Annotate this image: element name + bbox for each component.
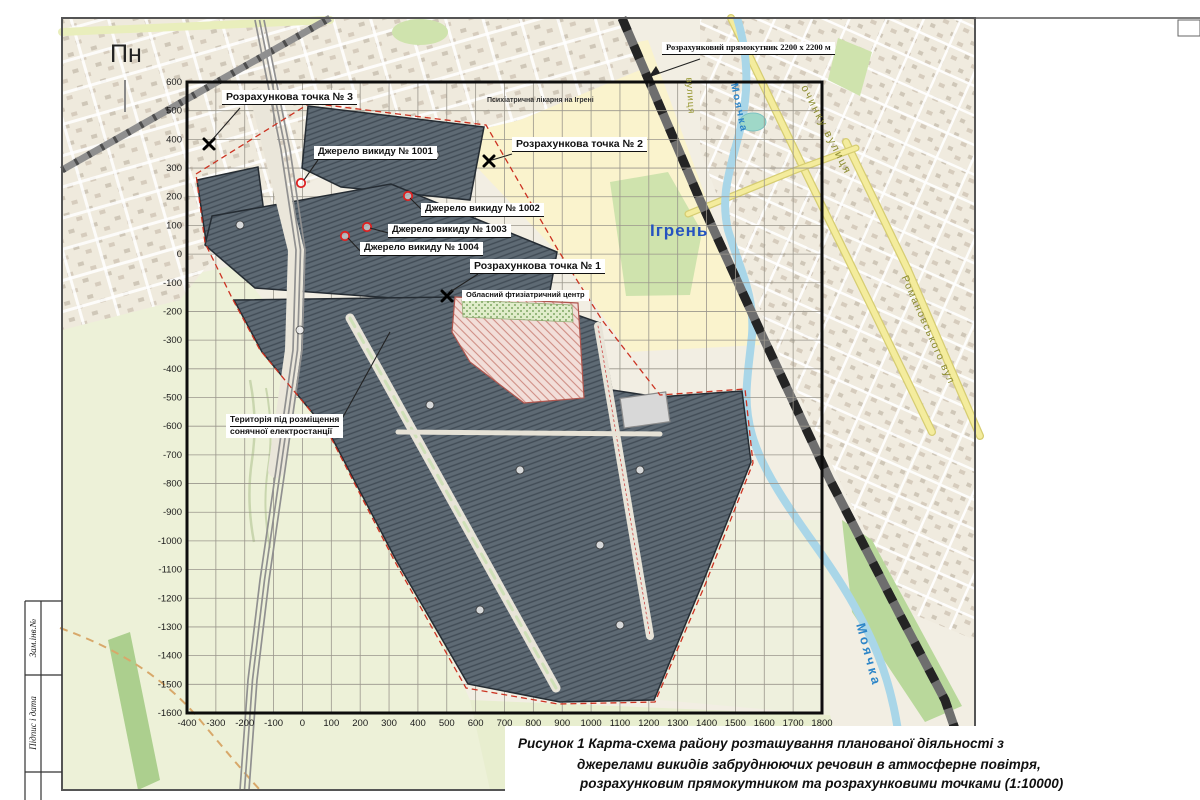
x-axis-tick-label: 200: [352, 718, 368, 729]
y-axis-tick-label: -400: [163, 364, 182, 375]
frame-cell-zam-inv: Зам.інв.№: [28, 613, 38, 663]
x-axis-tick-label: -100: [264, 718, 283, 729]
source-1001-label: Джерело викиду № 1001: [314, 146, 437, 160]
source-1001-marker: [297, 179, 305, 187]
x-axis-tick-label: -300: [206, 718, 225, 729]
caption-line1: Рисунок 1 Карта-схема району розташуванн…: [518, 736, 1004, 751]
y-axis-tick-label: -1200: [158, 593, 182, 604]
caption-line2: джерелами викидів забруднюючих речовин в…: [577, 757, 1041, 772]
y-axis-tick-label: 200: [166, 192, 182, 203]
y-axis-tick-label: -800: [163, 479, 182, 490]
figure-caption: Рисунок 1 Карта-схема району розташуванн…: [505, 726, 1200, 800]
y-axis-tick-label: -1500: [158, 679, 182, 690]
y-axis-tick-label: -1100: [158, 565, 182, 576]
y-axis-tick-label: 400: [166, 134, 182, 145]
street-line: [0, 0, 67, 529]
y-axis-tick-label: 500: [166, 106, 182, 117]
source-1002-label: Джерело викиду № 1002: [421, 203, 544, 217]
territory-label-line1: Територія під розміщення: [230, 415, 339, 427]
territory-label-line2: сонячної електростанції: [230, 427, 339, 437]
y-axis-tick-label: -1600: [158, 708, 182, 719]
y-axis-tick-label: -900: [163, 507, 182, 518]
city-label: Ігрень: [650, 221, 708, 241]
medical-center-label: Обласний фтизіатричний центр: [462, 290, 589, 301]
y-axis-tick-label: -600: [163, 421, 182, 432]
source-1003-marker: [363, 223, 371, 231]
x-axis-tick-label: 100: [323, 718, 339, 729]
x-axis-tick-label: 500: [439, 718, 455, 729]
y-axis-tick-label: -1000: [158, 536, 182, 547]
frame-cell-pidpys-data: Підпис і дата: [28, 694, 38, 752]
source-1004-marker: [341, 232, 349, 240]
caption-line3: розрахунковим прямокутником та розрахунк…: [580, 776, 1063, 791]
frame-corner-box: [1178, 20, 1200, 36]
map-figure: -400-300-200-100010020030040050060070080…: [0, 0, 1200, 800]
y-axis-tick-label: -100: [163, 278, 182, 289]
x-axis-tick-label: -400: [177, 718, 196, 729]
y-axis-tick-label: 600: [166, 77, 182, 88]
north-label: Пн: [110, 40, 142, 69]
calc-point-1-label: Розрахункова точка № 1: [470, 259, 605, 274]
x-axis-tick-label: 300: [381, 718, 397, 729]
source-1003-label: Джерело викиду № 1003: [388, 224, 511, 238]
x-axis-tick-label: 400: [410, 718, 426, 729]
street-line: [957, 96, 1200, 781]
y-axis-tick-label: -500: [163, 393, 182, 404]
x-axis-tick-label: 600: [468, 718, 484, 729]
territory-label: Територія під розміщення сонячної електр…: [226, 414, 343, 438]
y-axis-tick-label: -1300: [158, 622, 182, 633]
y-axis-tick-label: 0: [177, 249, 182, 260]
y-axis-tick-label: 100: [166, 220, 182, 231]
y-axis-tick-label: -1400: [158, 651, 182, 662]
y-axis-tick-label: -700: [163, 450, 182, 461]
y-axis-tick-label: -300: [163, 335, 182, 346]
y-axis-tick-label: -200: [163, 306, 182, 317]
y-axis-tick-label: 300: [166, 163, 182, 174]
calc-rectangle-label: Розрахунковий прямокутник 2200 х 2200 м: [662, 42, 835, 55]
calc-point-2-label: Розрахункова точка № 2: [512, 137, 647, 152]
document-page: -400-300-200-100010020030040050060070080…: [0, 0, 1200, 800]
x-axis-tick-label: 0: [300, 718, 305, 729]
street-line: [0, 0, 33, 539]
source-1004-label: Джерело викиду № 1004: [360, 242, 483, 256]
x-axis-tick-label: -200: [235, 718, 254, 729]
station-building: [620, 392, 670, 428]
hospital-label: Психіатрична лікарня на Ігрені: [487, 97, 594, 104]
street-line: [0, 0, 658, 1]
calc-point-3-label: Розрахункова точка № 3: [222, 90, 357, 105]
